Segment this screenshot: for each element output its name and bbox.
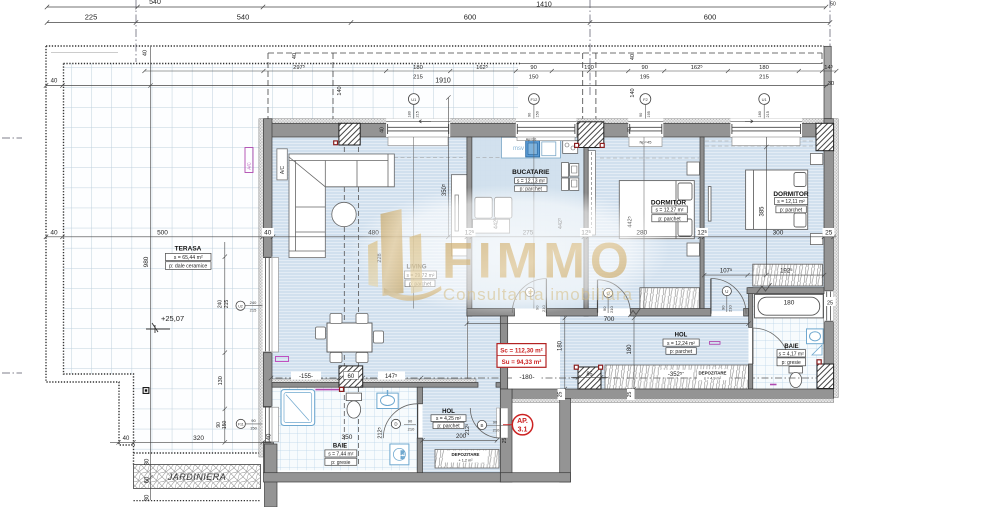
svg-text:215: 215 bbox=[759, 75, 769, 81]
svg-text:s = 12,11 m²: s = 12,11 m² bbox=[777, 199, 805, 205]
svg-text:350: 350 bbox=[341, 434, 352, 441]
svg-text:90: 90 bbox=[528, 113, 532, 117]
svg-text:90: 90 bbox=[408, 419, 413, 424]
svg-text:A/C: A/C bbox=[247, 162, 252, 170]
svg-text:600: 600 bbox=[704, 13, 717, 22]
svg-text:BAIE: BAIE bbox=[333, 443, 347, 449]
svg-text:TERASA: TERASA bbox=[175, 246, 202, 253]
svg-text:p: parchet: p: parchet bbox=[780, 207, 803, 213]
svg-text:p: gresie: p: gresie bbox=[782, 360, 801, 366]
svg-text:215: 215 bbox=[415, 111, 419, 117]
svg-text:40: 40 bbox=[142, 50, 148, 56]
svg-text:90: 90 bbox=[216, 422, 222, 428]
svg-text:40: 40 bbox=[50, 229, 58, 236]
svg-text:p: gresie: p: gresie bbox=[331, 460, 350, 466]
svg-text:40: 40 bbox=[292, 53, 298, 59]
svg-text:150: 150 bbox=[529, 75, 539, 81]
svg-text:s = 65,44 m²: s = 65,44 m² bbox=[174, 255, 203, 261]
svg-text:40: 40 bbox=[123, 436, 130, 442]
svg-text:180: 180 bbox=[558, 340, 564, 351]
svg-text:DORMITOR: DORMITOR bbox=[773, 191, 809, 198]
svg-text:Ap=90: Ap=90 bbox=[526, 137, 537, 141]
svg-text:195: 195 bbox=[640, 75, 650, 81]
svg-text:90: 90 bbox=[721, 305, 726, 310]
svg-text:F11: F11 bbox=[238, 423, 244, 427]
svg-text:AP.: AP. bbox=[517, 418, 528, 425]
svg-text:195: 195 bbox=[647, 111, 651, 117]
svg-text:40: 40 bbox=[380, 127, 386, 133]
svg-text:30: 30 bbox=[145, 494, 151, 501]
svg-text:+25,07: +25,07 bbox=[161, 314, 184, 323]
svg-text:Sc = 112,30 m²: Sc = 112,30 m² bbox=[500, 347, 542, 354]
svg-text:180: 180 bbox=[758, 111, 762, 117]
svg-text:90: 90 bbox=[530, 65, 536, 71]
svg-text:s = 4,9 m²: s = 4,9 m² bbox=[704, 377, 722, 381]
svg-text:HOL: HOL bbox=[675, 332, 688, 338]
svg-text:150: 150 bbox=[250, 426, 257, 431]
svg-text:U1: U1 bbox=[411, 97, 417, 102]
svg-text:90: 90 bbox=[493, 420, 498, 425]
svg-text:180: 180 bbox=[627, 344, 633, 355]
svg-text:540: 540 bbox=[149, 0, 161, 6]
svg-text:s = 7,44 m²: s = 7,44 m² bbox=[328, 452, 353, 458]
svg-text:BUCATARIE: BUCATARIE bbox=[512, 169, 550, 176]
svg-text:210: 210 bbox=[408, 427, 415, 432]
svg-text:p: dale ceramice: p: dale ceramice bbox=[169, 264, 207, 270]
svg-text:E 75: E 75 bbox=[400, 450, 405, 459]
svg-text:1910: 1910 bbox=[435, 78, 451, 85]
svg-text:s = 4,17 m²: s = 4,17 m² bbox=[779, 352, 804, 358]
svg-text:30: 30 bbox=[828, 81, 834, 87]
svg-text:215: 215 bbox=[766, 111, 770, 117]
svg-text:DEPOZITARE: DEPOZITARE bbox=[452, 452, 480, 457]
svg-text:DEPOZITARE: DEPOZITARE bbox=[699, 370, 727, 375]
svg-text:B: B bbox=[481, 423, 484, 428]
svg-text:40: 40 bbox=[51, 79, 58, 85]
svg-text:25: 25 bbox=[502, 438, 508, 444]
svg-text:40: 40 bbox=[627, 127, 633, 133]
svg-text:40: 40 bbox=[264, 229, 272, 236]
svg-text:180: 180 bbox=[759, 65, 769, 71]
svg-text:Su = 94,33 m²: Su = 94,33 m² bbox=[502, 359, 542, 366]
svg-text:F12: F12 bbox=[530, 97, 538, 102]
svg-text:500: 500 bbox=[157, 229, 168, 236]
svg-text:215: 215 bbox=[224, 300, 230, 309]
svg-text:130: 130 bbox=[218, 376, 224, 385]
svg-text:1410: 1410 bbox=[536, 2, 552, 9]
svg-text:HOL: HOL bbox=[442, 409, 455, 415]
svg-text:3.1: 3.1 bbox=[518, 427, 528, 434]
svg-text:s = 12,13 m²: s = 12,13 m² bbox=[517, 178, 545, 184]
svg-text:700: 700 bbox=[604, 316, 615, 323]
svg-text:D: D bbox=[394, 422, 397, 427]
svg-text:210: 210 bbox=[493, 428, 500, 433]
svg-text:30: 30 bbox=[145, 458, 151, 465]
svg-text:85: 85 bbox=[586, 371, 592, 377]
svg-text:180: 180 bbox=[413, 65, 423, 71]
svg-text:40: 40 bbox=[630, 54, 636, 60]
svg-text:215: 215 bbox=[250, 308, 257, 313]
svg-text:Consultanta imobiliara: Consultanta imobiliara bbox=[443, 285, 633, 304]
svg-text:90: 90 bbox=[641, 65, 647, 71]
svg-text:s = 12,24 m²: s = 12,24 m² bbox=[667, 341, 695, 347]
svg-text:25: 25 bbox=[827, 301, 833, 307]
svg-text:215: 215 bbox=[413, 75, 423, 81]
svg-text:225: 225 bbox=[85, 13, 98, 22]
svg-text:90: 90 bbox=[639, 113, 643, 117]
svg-text:180: 180 bbox=[408, 111, 412, 117]
svg-text:50: 50 bbox=[830, 2, 836, 8]
svg-text:U: U bbox=[725, 289, 728, 294]
svg-text:385: 385 bbox=[760, 206, 766, 217]
svg-text:150: 150 bbox=[222, 421, 228, 430]
svg-text:540: 540 bbox=[237, 13, 250, 22]
svg-text:p: parchet: p: parchet bbox=[437, 424, 460, 430]
svg-text:140: 140 bbox=[337, 86, 343, 95]
svg-text:210: 210 bbox=[728, 305, 733, 312]
svg-text:25: 25 bbox=[825, 229, 833, 236]
svg-text:150: 150 bbox=[536, 111, 540, 117]
svg-text:A/C: A/C bbox=[280, 165, 286, 174]
svg-text:90: 90 bbox=[251, 418, 256, 423]
svg-text:320: 320 bbox=[193, 435, 204, 442]
svg-text:p: parchet: p: parchet bbox=[670, 349, 693, 355]
svg-text:180: 180 bbox=[784, 300, 795, 307]
svg-text:300: 300 bbox=[773, 229, 784, 236]
svg-text:600: 600 bbox=[464, 13, 477, 22]
svg-text:25: 25 bbox=[558, 392, 564, 398]
svg-text:-180-: -180- bbox=[519, 374, 534, 381]
svg-text:980: 980 bbox=[143, 256, 150, 267]
svg-text:40: 40 bbox=[267, 433, 273, 440]
svg-text:F2: F2 bbox=[643, 97, 648, 102]
svg-text:+ 1,2 m²: + 1,2 m² bbox=[458, 458, 473, 462]
svg-text:240: 240 bbox=[250, 300, 257, 305]
svg-text:60: 60 bbox=[348, 374, 355, 380]
svg-text:BAIE: BAIE bbox=[784, 344, 798, 350]
svg-text:190: 190 bbox=[584, 65, 594, 71]
svg-text:JARDINIERA: JARDINIERA bbox=[167, 472, 227, 482]
svg-text:60: 60 bbox=[145, 476, 151, 483]
svg-text:Np=45: Np=45 bbox=[640, 140, 653, 145]
svg-text:240: 240 bbox=[218, 300, 224, 309]
svg-text:FIMMO: FIMMO bbox=[442, 233, 634, 289]
svg-text:U1: U1 bbox=[762, 97, 768, 102]
svg-text:U2: U2 bbox=[238, 305, 243, 309]
svg-text:msv: msv bbox=[513, 146, 524, 152]
svg-text:s = 4,25 m²: s = 4,25 m² bbox=[436, 416, 461, 422]
svg-text:-155-: -155- bbox=[299, 374, 313, 380]
svg-text:25: 25 bbox=[627, 392, 633, 398]
svg-text:140: 140 bbox=[630, 88, 636, 97]
